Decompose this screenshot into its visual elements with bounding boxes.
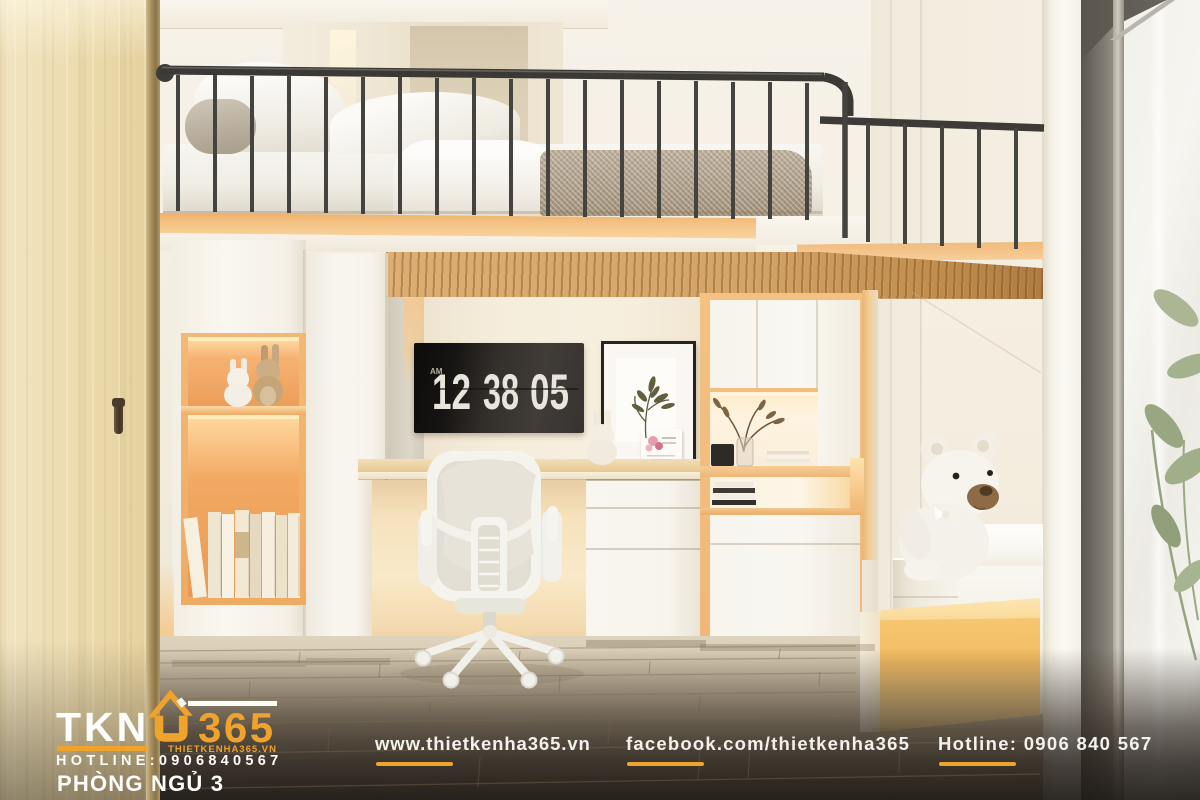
svg-text:12: 12 xyxy=(432,364,471,420)
svg-text:38: 38 xyxy=(483,364,519,420)
svg-text:05: 05 xyxy=(530,364,569,420)
